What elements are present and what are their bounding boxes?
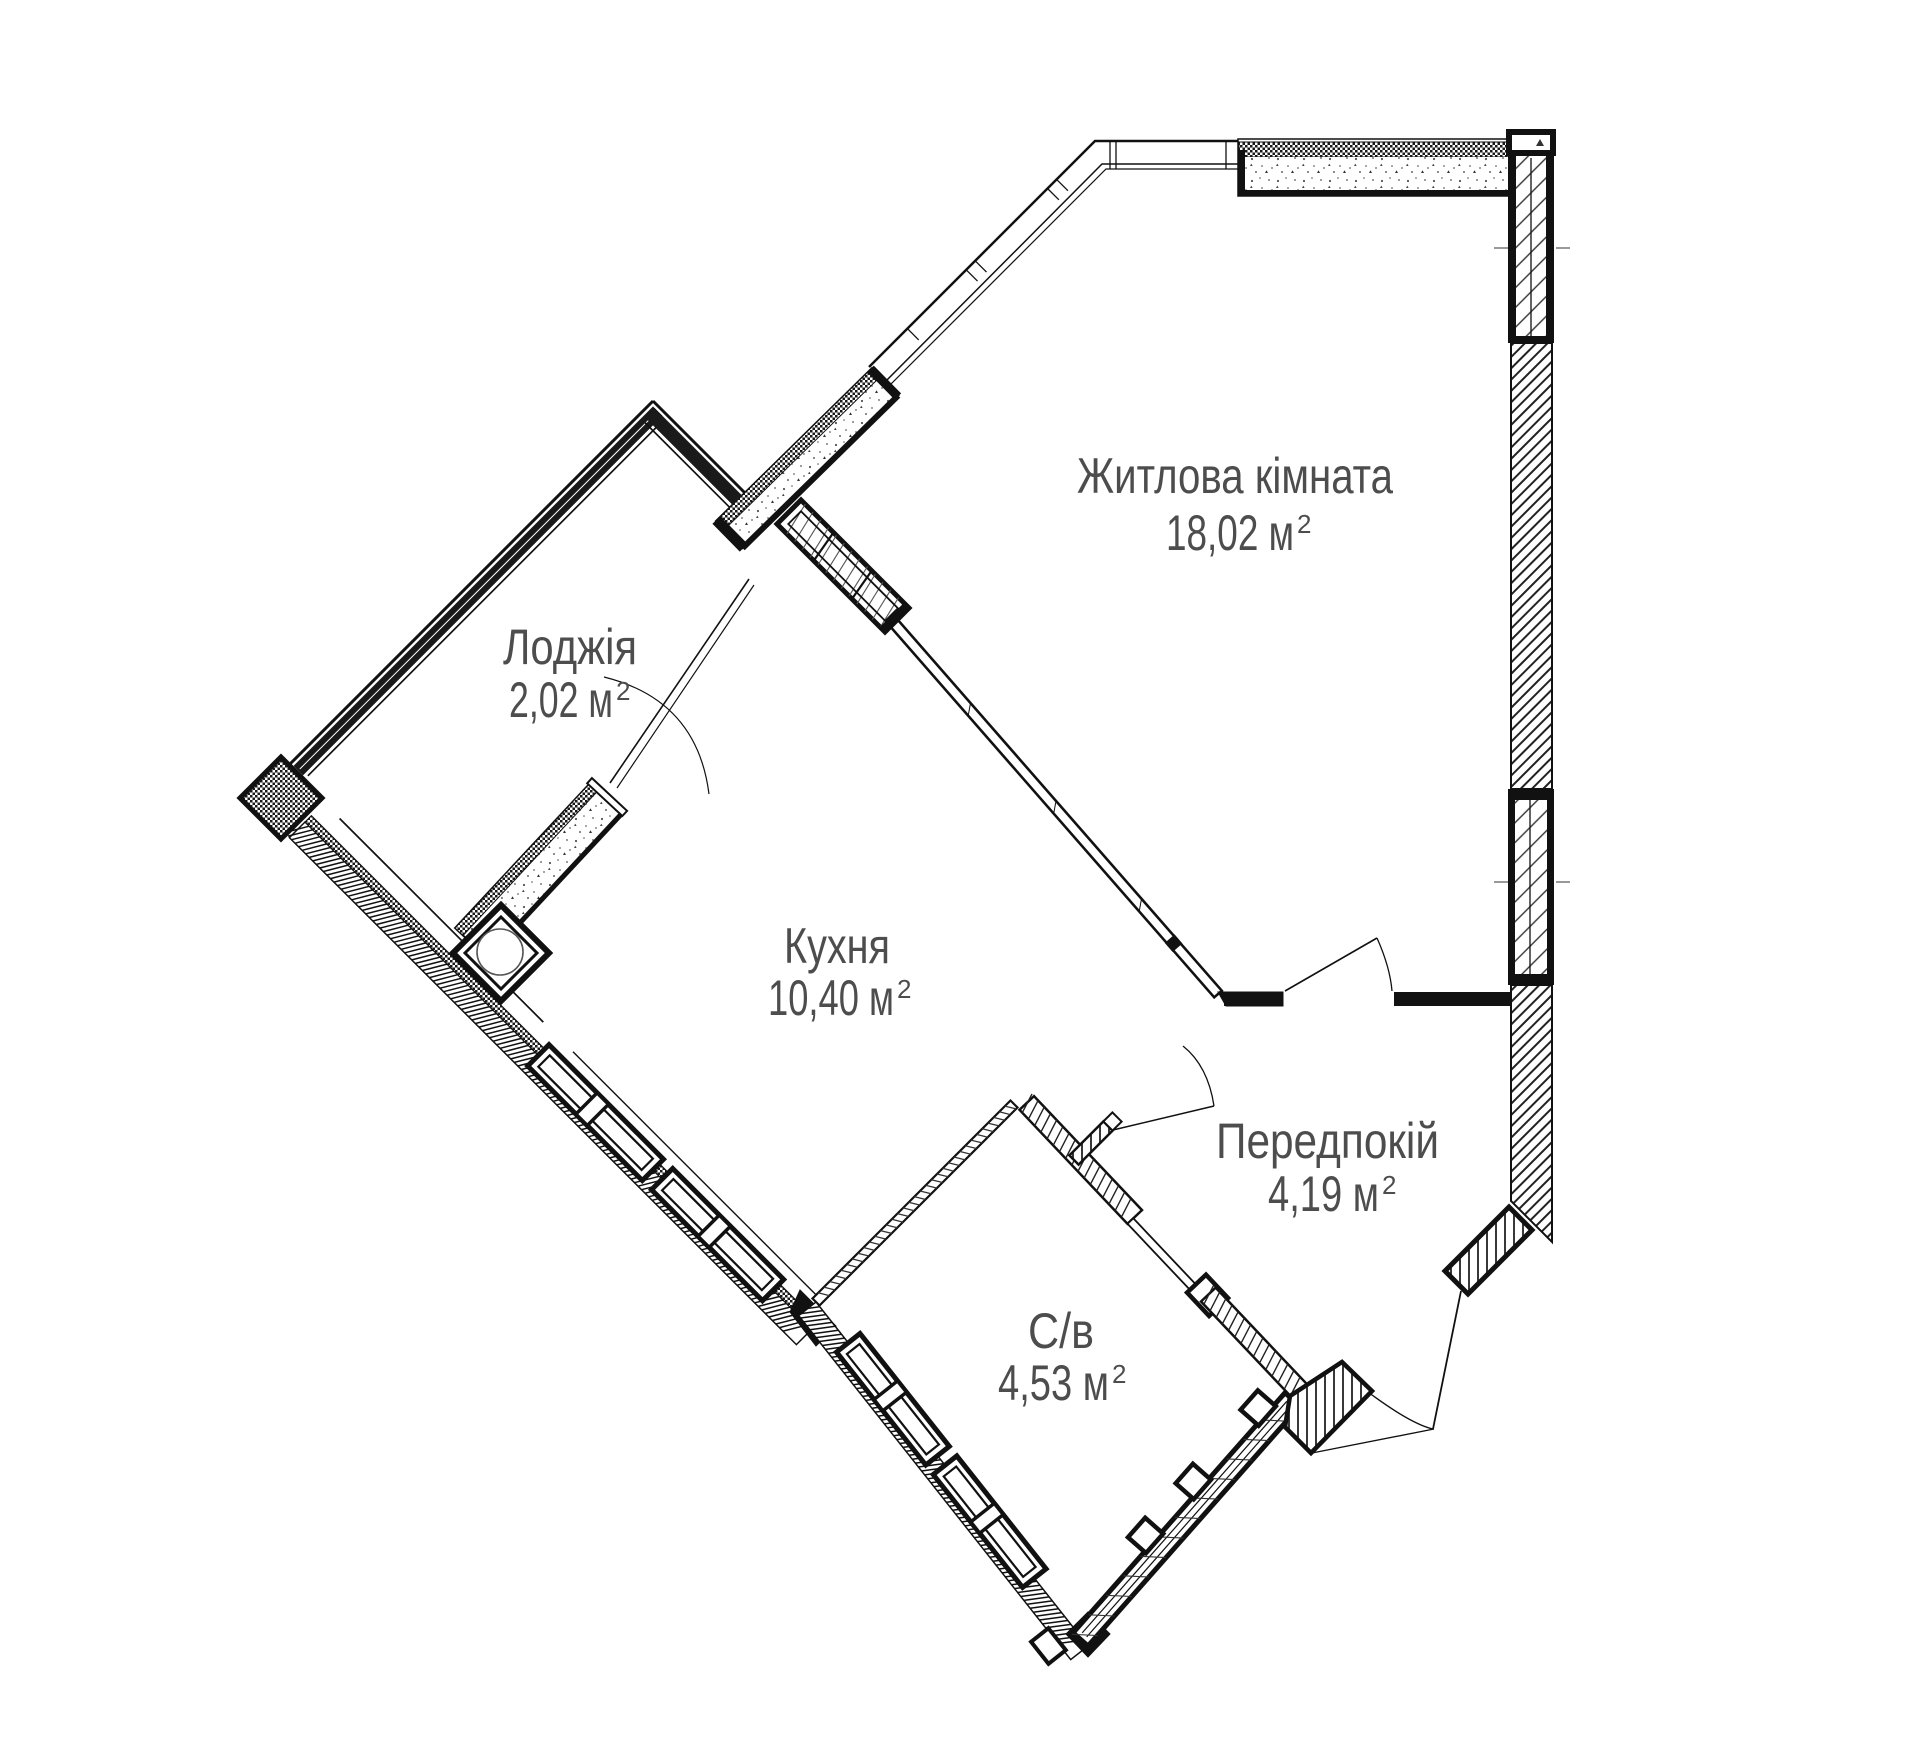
svg-text:2: 2	[1382, 1170, 1396, 1200]
svg-text:2: 2	[1297, 509, 1311, 539]
svg-text:4,19 м: 4,19 м	[1268, 1166, 1379, 1222]
svg-text:Кухня: Кухня	[784, 918, 890, 974]
svg-text:4,53 м: 4,53 м	[998, 1355, 1109, 1411]
svg-text:2: 2	[1112, 1359, 1126, 1389]
svg-text:Житлова кімната: Житлова кімната	[1077, 448, 1393, 504]
svg-text:2,02 м: 2,02 м	[509, 672, 613, 728]
svg-text:10,40 м: 10,40 м	[768, 970, 894, 1026]
svg-text:2: 2	[897, 974, 911, 1004]
svg-text:Лоджія: Лоджія	[503, 619, 637, 675]
svg-text:С/в: С/в	[1028, 1303, 1094, 1359]
svg-text:Передпокій: Передпокій	[1216, 1113, 1439, 1169]
svg-text:18,02 м: 18,02 м	[1166, 505, 1294, 561]
svg-text:2: 2	[616, 676, 630, 706]
